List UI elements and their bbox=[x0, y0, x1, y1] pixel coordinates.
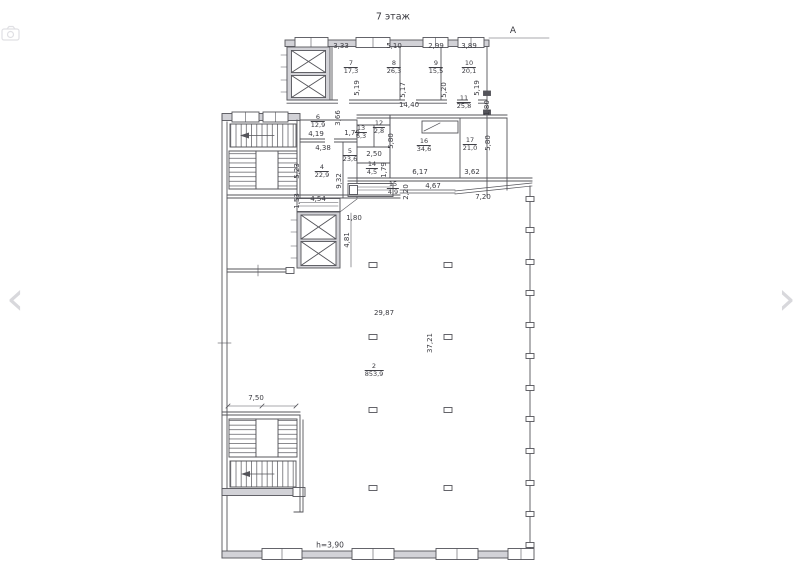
plan-title: 7 этаж bbox=[376, 12, 410, 23]
next-image-arrow[interactable]: › bbox=[778, 268, 796, 328]
floor-plan-viewer: 3,335,102,993,8914,404,191,794,382,506,1… bbox=[0, 0, 800, 573]
ceiling-height-note: h=3,90 bbox=[316, 541, 344, 550]
axis-label: А bbox=[510, 26, 516, 36]
floor-plan-drawing bbox=[0, 0, 800, 573]
prev-image-arrow[interactable]: ‹ bbox=[6, 268, 24, 328]
